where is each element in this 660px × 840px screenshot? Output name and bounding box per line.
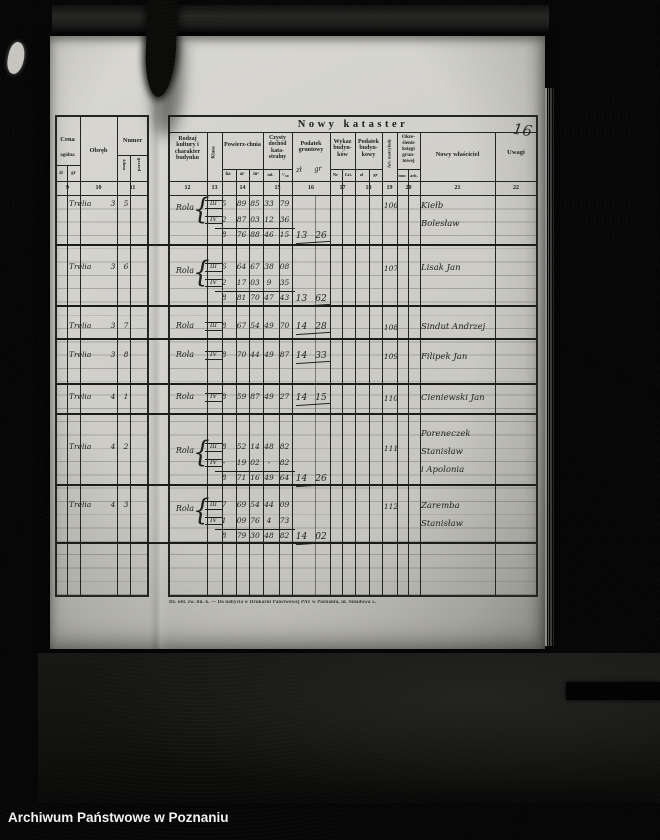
col-header-wykaz: Wykaz budyn-ków (330, 139, 355, 158)
income-tal: 12 (261, 215, 277, 224)
matricula-article: 106 (380, 201, 402, 210)
area-ha: 2 (216, 215, 232, 224)
unit-cena-zl: zł (55, 171, 67, 176)
parcel-number: 2 (119, 442, 133, 451)
parcel-number: 1 (119, 392, 133, 401)
grid-line (536, 115, 538, 597)
entry-separator (55, 305, 537, 307)
land-tax-gr: 15 (311, 393, 331, 403)
col-num-19: 19 (382, 185, 397, 191)
owner-name: Stanisław (421, 447, 501, 457)
grid-line (55, 115, 148, 117)
tax-flourish (296, 403, 330, 406)
col-header-obreb: Obręb (80, 147, 117, 154)
photo-stage: 16 Nowy kataster Cena ogólna zł gr Obręb… (0, 0, 660, 840)
tax-flourish (296, 332, 330, 335)
matricula-article: 109 (380, 352, 402, 361)
unit-ha: ha (221, 172, 235, 177)
income-setne: 87 (277, 350, 292, 359)
col-header-rodzaj: Rodzaj kultury i charakter budynku (169, 136, 206, 162)
col-num-14: 14 (222, 185, 263, 191)
income-tal: 38 (261, 262, 277, 271)
income-tal: 4 (261, 516, 277, 525)
col-header-parceli: parceli (136, 153, 141, 176)
paper-sliver (5, 41, 27, 76)
unit-tal: tal. (262, 172, 279, 177)
unit-setne: ¹/₁₀₀ (279, 172, 292, 177)
page-crease (149, 36, 169, 649)
culture-type: Rola (170, 392, 200, 401)
unit-m2: m² (249, 172, 263, 177)
grid-line (55, 115, 57, 597)
income-setne: 82 (277, 442, 292, 451)
col-header-powierzchnia: Powierz-chnia (222, 142, 263, 148)
scan-bottom-area (38, 653, 660, 803)
owner-name: Kiełb (421, 201, 501, 211)
land-tax-gr: 28 (311, 322, 331, 332)
grid-line (147, 115, 149, 597)
income-setne: 15 (277, 230, 292, 239)
grid-line (168, 115, 538, 117)
col-header-podatek-budynkowy: Podatek budyn-kowy (355, 139, 382, 158)
sum-rule (215, 471, 295, 472)
archive-watermark: Archiwum Państwowe w Poznaniu (8, 810, 229, 825)
col-num-22: 22 (495, 185, 537, 191)
unit-pb-gr: gr (369, 172, 382, 177)
income-tal: 49 (261, 392, 277, 401)
area-ha: 8 (216, 392, 232, 401)
col-header-mapy: mapy (121, 154, 126, 175)
grid-line (55, 181, 148, 182)
income-setne: 82 (277, 458, 292, 467)
page-stack-edge (553, 88, 554, 646)
entry-separator (55, 413, 537, 415)
income-setne: 64 (277, 473, 292, 482)
income-setne: 79 (277, 199, 292, 208)
unit-pb-zl: zł (354, 172, 369, 177)
col-header-numer: Numer (117, 137, 148, 144)
grid-line (355, 132, 356, 597)
area-ha: 8 (216, 531, 232, 540)
culture-type: Rola (170, 350, 200, 359)
sum-rule (215, 291, 295, 292)
col-num-16: 16 (292, 185, 330, 191)
handwritten-unit-zl: zł (296, 166, 303, 175)
owner-name: Bolesław (421, 219, 501, 229)
map-number: 4 (107, 442, 119, 451)
grid-line (292, 132, 293, 597)
sum-rule (215, 529, 295, 530)
land-tax-zl: 14 (292, 532, 311, 542)
col-header-dochod: Czysty dochód kata-stralny (263, 135, 292, 160)
area-ha: 6 (216, 262, 232, 271)
owner-name: Filipek Jan (421, 352, 501, 362)
owner-name: Zaremba (421, 501, 501, 511)
grid-line (168, 195, 538, 196)
income-setne: 27 (277, 392, 292, 401)
area-ha: 2 (216, 278, 232, 287)
land-tax-zl: 13 (292, 231, 311, 241)
income-tal: 44 (261, 500, 277, 509)
entry-separator (55, 542, 537, 544)
map-number: 3 (107, 321, 119, 330)
area-ha: 8 (216, 230, 232, 239)
land-tax-gr: 33 (311, 351, 331, 361)
land-tax-gr: 26 (311, 474, 331, 484)
matricula-article: 110 (380, 394, 402, 403)
unit-cena-gr: gr (67, 171, 80, 176)
entry-separator (55, 383, 537, 385)
income-tal: - (261, 458, 277, 467)
col-header-cena-sub: ogólna (55, 153, 80, 158)
col-num-10: 10 (80, 185, 117, 191)
land-tax-zl: 13 (292, 294, 311, 304)
col-header-art-matrykuly: Art. matrykuły (387, 131, 392, 177)
brace: { (193, 495, 205, 528)
income-tal: 49 (261, 321, 277, 330)
map-number: 3 (107, 350, 119, 359)
income-tal: 48 (261, 442, 277, 451)
land-tax-zl: 14 (292, 393, 311, 403)
scan-top-band (52, 5, 549, 32)
grid-line (168, 132, 538, 133)
matricula-article: 112 (380, 502, 402, 511)
income-setne: 35 (277, 278, 292, 287)
land-tax-gr: 02 (311, 532, 331, 542)
grid-line (117, 155, 148, 156)
table-title: Nowy kataster (168, 119, 538, 130)
grid-line (330, 132, 331, 597)
income-tal: 46 (261, 230, 277, 239)
grid-line (222, 169, 292, 170)
brace: { (193, 194, 205, 227)
page-stack-edge (545, 88, 547, 646)
map-number: 3 (107, 262, 119, 271)
area-ha: 8 (216, 321, 232, 330)
area-ha: 8 (216, 442, 232, 451)
brace: { (193, 257, 205, 290)
area-ha: 1 (216, 516, 232, 525)
area-ha: 8 (216, 350, 232, 359)
col-header-klasa: Klasa (212, 140, 217, 166)
col-num-11: 11 (117, 185, 148, 191)
entry-separator (55, 338, 537, 340)
income-tal: 49 (261, 473, 277, 482)
land-tax-zl: 14 (292, 474, 311, 484)
grid-line (330, 169, 382, 170)
culture-type: Rola (170, 321, 200, 330)
col-num-12: 12 (168, 185, 207, 191)
income-setne: 70 (277, 321, 292, 330)
dark-object (566, 682, 660, 700)
land-tax-gr: 26 (311, 231, 331, 241)
grid-line (168, 595, 538, 597)
col-num-15: 15 (263, 185, 292, 191)
grid-line (55, 195, 148, 196)
sum-rule (215, 228, 295, 229)
income-setne: 82 (277, 531, 292, 540)
owner-name: Cieniewski Jan (421, 393, 501, 403)
col-num-13: 13 (207, 185, 222, 191)
page-stack-edge (550, 88, 552, 646)
unit-ar: ar (235, 172, 249, 177)
land-tax-zl: 14 (292, 322, 311, 332)
parcel-number: 6 (119, 262, 133, 271)
income-setne: 09 (277, 500, 292, 509)
owner-name: Poreneczek (421, 429, 501, 439)
unit-ark: ark. (408, 173, 420, 178)
col-header-ksiega: Okre-ślenie księgi grun-towej (397, 135, 420, 165)
grid-line (67, 165, 68, 597)
entry-separator (55, 484, 537, 486)
col-num-21: 21 (420, 185, 495, 191)
col-header-nowy-wlasciciel: Nowy właściciel (420, 151, 495, 158)
income-tal: 9 (261, 278, 277, 287)
land-tax-gr: 62 (311, 294, 331, 304)
page-stack-edge (548, 88, 549, 646)
col-header-uwagi: Uwagi (495, 149, 537, 156)
grid-line (130, 155, 131, 597)
area-ha: 7 (216, 500, 232, 509)
parcel-number: 7 (119, 321, 133, 330)
matricula-article: 108 (380, 323, 402, 332)
land-tax-zl: 14 (292, 351, 311, 361)
income-setne: 73 (277, 516, 292, 525)
owner-name: i Apolonia (421, 465, 501, 475)
document-page: 16 Nowy kataster Cena ogólna zł gr Obręb… (50, 36, 545, 649)
income-setne: 43 (277, 293, 292, 302)
matricula-article: 111 (380, 444, 402, 453)
area-ha: 8 (216, 293, 232, 302)
parcel-number: 8 (119, 350, 133, 359)
income-setne: 36 (277, 215, 292, 224)
tax-flourish (296, 361, 330, 364)
handwritten-unit-gr: gr (313, 164, 322, 173)
map-number: 3 (107, 199, 119, 208)
area-ha: - (216, 458, 232, 467)
income-tal: 48 (261, 531, 277, 540)
parcel-number: 5 (119, 199, 133, 208)
income-tal: 33 (261, 199, 277, 208)
matricula-article: 107 (380, 264, 402, 273)
map-number: 4 (107, 500, 119, 509)
grid-line (55, 595, 148, 597)
income-setne: 08 (277, 262, 292, 271)
income-tal: 47 (261, 293, 277, 302)
printer-note: Dz. obl. zw. lin. k. — Do nabycia w Druk… (169, 600, 439, 605)
map-number: 4 (107, 392, 119, 401)
area-ha: 5 (216, 199, 232, 208)
income-tal: 49 (261, 350, 277, 359)
col-header-cena: Cena (55, 136, 80, 143)
owner-name: Lisak Jan (421, 263, 501, 273)
brace: { (193, 437, 205, 470)
owner-name: Stanisław (421, 519, 501, 529)
owner-name: Sindut Andrzej (421, 322, 501, 332)
area-ha: 8 (216, 473, 232, 482)
grid-line (168, 181, 538, 182)
parcel-number: 3 (119, 500, 133, 509)
entry-separator (55, 244, 537, 246)
col-header-podatek-gruntowy: Podatek gruntowy (292, 141, 330, 154)
